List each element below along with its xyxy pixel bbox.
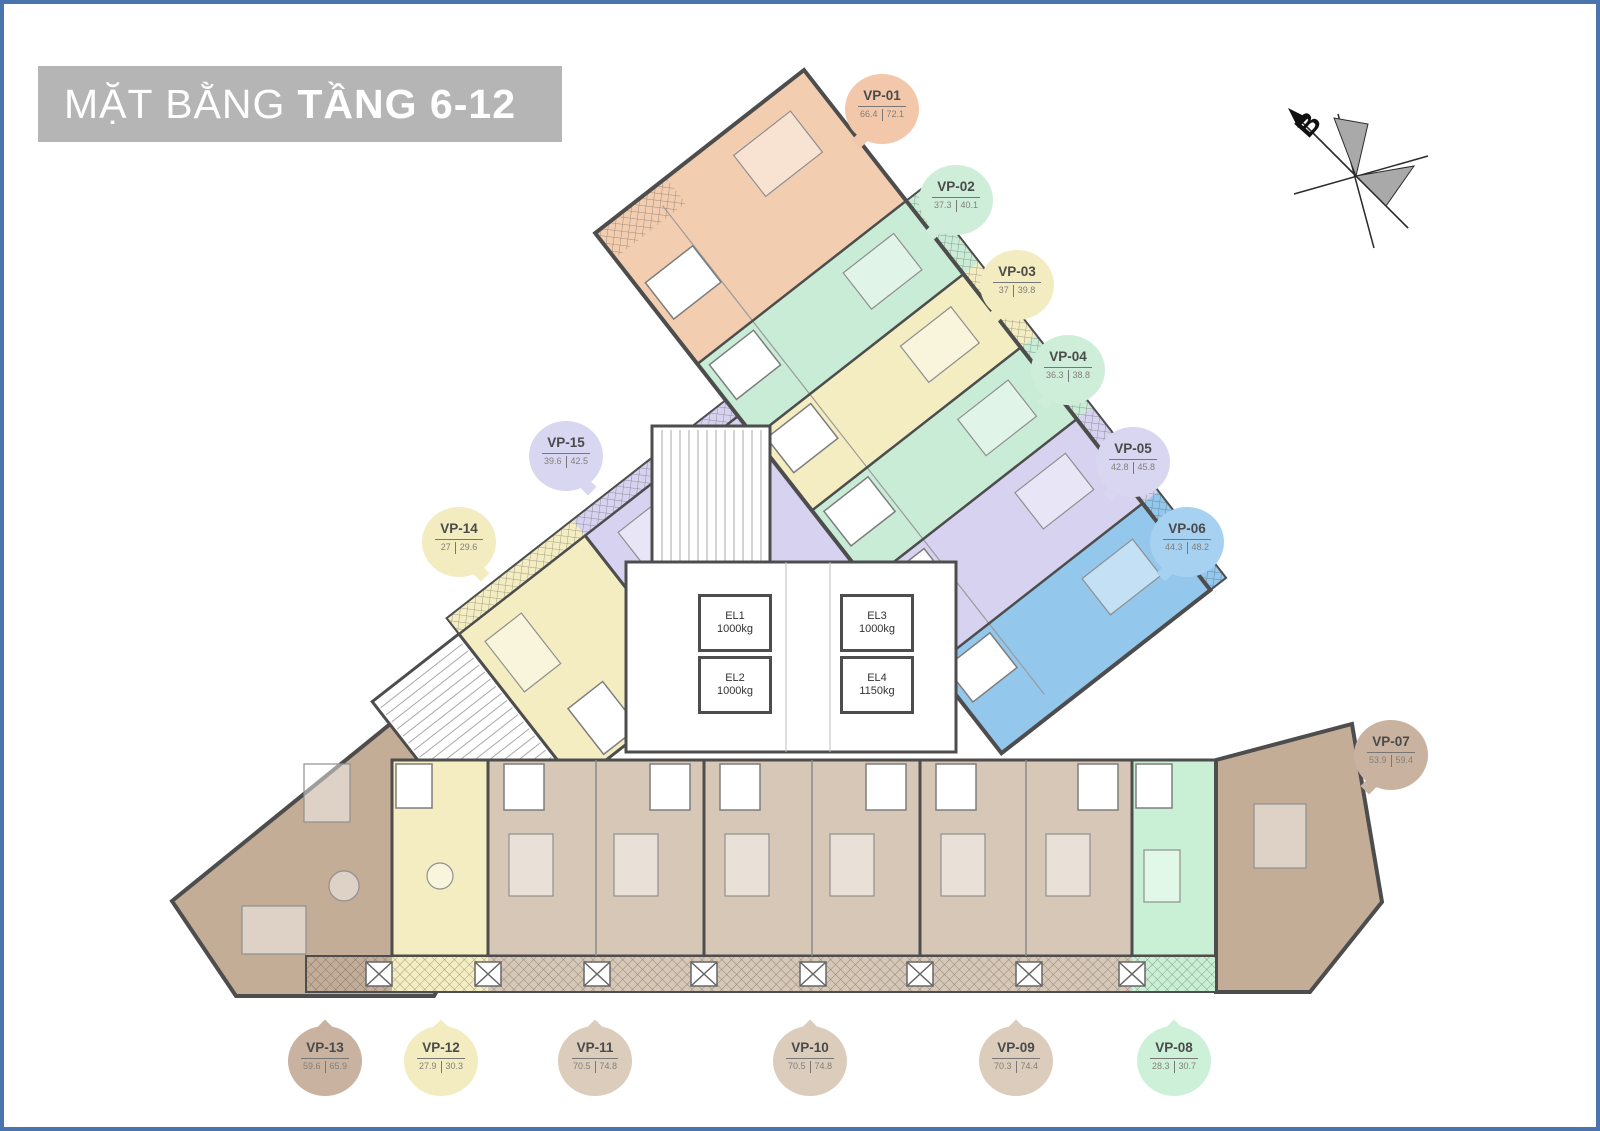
elevator-id: EL2 bbox=[725, 672, 745, 685]
elevator-el4: EL4 1150kg bbox=[840, 656, 914, 714]
page-title: MẶT BẰNG TẦNG 6-12 bbox=[38, 66, 562, 142]
unit-label-vp04: VP-04 36.338.8 bbox=[1031, 335, 1105, 405]
elevator-id: EL3 bbox=[867, 610, 887, 623]
elevator-el1: EL1 1000kg bbox=[698, 594, 772, 652]
elevator-id: EL4 bbox=[867, 672, 887, 685]
unit-label-vp09: VP-09 70.374.4 bbox=[979, 1026, 1053, 1096]
unit-label-vp03: VP-03 3739.8 bbox=[980, 250, 1054, 320]
unit-id: VP-06 bbox=[1163, 522, 1211, 540]
unit-id: VP-14 bbox=[435, 522, 483, 540]
title-bold: TẦNG 6-12 bbox=[297, 81, 516, 128]
unit-label-vp12: VP-12 27.930.3 bbox=[404, 1026, 478, 1096]
elevator-el3: EL3 1000kg bbox=[840, 594, 914, 652]
unit-label-vp10: VP-10 70.574.8 bbox=[773, 1026, 847, 1096]
title-normal: MẶT BẰNG bbox=[64, 81, 285, 128]
unit-id: VP-15 bbox=[542, 436, 590, 454]
unit-id: VP-09 bbox=[992, 1041, 1040, 1059]
unit-id: VP-05 bbox=[1109, 442, 1157, 460]
elevator-capacity: 1150kg bbox=[859, 685, 894, 698]
unit-label-vp02: VP-02 37.340.1 bbox=[919, 165, 993, 235]
unit-label-vp08: VP-08 28.330.7 bbox=[1137, 1026, 1211, 1096]
unit-id: VP-04 bbox=[1044, 350, 1092, 368]
floorplan-drawing bbox=[4, 4, 1600, 1131]
unit-id: VP-12 bbox=[417, 1041, 465, 1059]
unit-id: VP-01 bbox=[858, 89, 906, 107]
unit-id: VP-11 bbox=[572, 1041, 619, 1059]
elevator-capacity: 1000kg bbox=[717, 685, 753, 698]
unit-label-vp05: VP-05 42.845.8 bbox=[1096, 427, 1170, 497]
unit-id: VP-02 bbox=[932, 180, 980, 198]
elevator-capacity: 1000kg bbox=[717, 623, 753, 636]
unit-id: VP-10 bbox=[786, 1041, 834, 1059]
elevator-capacity: 1000kg bbox=[859, 623, 895, 636]
unit-id: VP-03 bbox=[993, 265, 1041, 283]
balcony-south bbox=[306, 956, 1216, 992]
block-south bbox=[306, 724, 1382, 992]
unit-label-vp13: VP-13 59.665.9 bbox=[288, 1026, 362, 1096]
unit-label-vp14: VP-14 2729.6 bbox=[422, 507, 496, 577]
elevator-el2: EL2 1000kg bbox=[698, 656, 772, 714]
unit-id: VP-07 bbox=[1367, 735, 1415, 753]
unit-label-vp11: VP-11 70.574.8 bbox=[558, 1026, 632, 1096]
elevator-id: EL1 bbox=[725, 610, 745, 623]
unit-label-vp01: VP-01 66.472.1 bbox=[845, 74, 919, 144]
unit-id: VP-13 bbox=[301, 1041, 349, 1059]
floorplan-page: MẶT BẰNG TẦNG 6-12 B EL1 1000kg EL2 1000… bbox=[0, 0, 1600, 1131]
unit-label-vp15: VP-15 39.642.5 bbox=[529, 421, 603, 491]
unit-id: VP-08 bbox=[1150, 1041, 1198, 1059]
unit-label-vp06: VP-06 44.348.2 bbox=[1150, 507, 1224, 577]
unit-label-vp07: VP-07 53.959.4 bbox=[1354, 720, 1428, 790]
